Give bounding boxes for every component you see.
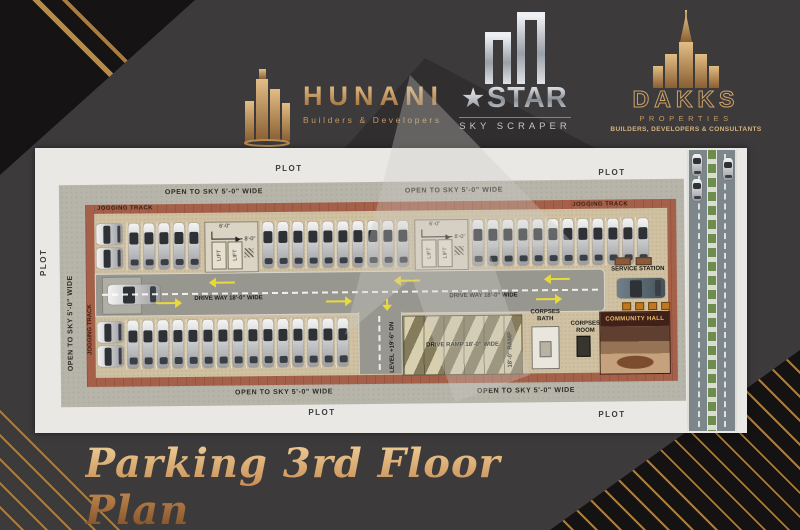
poster: HUNANI Builders & Developers ★ STAR SKY …	[0, 0, 800, 530]
road-car	[723, 158, 733, 180]
jogging-track-label-top-right: JOGGING TRACK	[572, 201, 628, 208]
parked-car	[157, 320, 169, 368]
parked-car	[487, 220, 498, 266]
driveway-label-1: DRIVE WAY 18'-0" WIDE	[181, 295, 276, 302]
parked-car	[128, 223, 139, 269]
open-to-sky-left: OPEN TO SKY 5'-0" WIDE	[66, 221, 75, 371]
ramp-width-label: 18'-0" RAMP	[507, 320, 514, 368]
parked-car	[127, 320, 139, 368]
plot-label-left: PLOT	[39, 234, 48, 290]
direction-arrow-left	[546, 278, 570, 280]
open-to-sky-bottom-left: OPEN TO SKY 5'-0" WIDE	[204, 388, 364, 397]
hunani-name: HUNANI	[303, 83, 444, 110]
parked-car	[202, 320, 214, 368]
service-station-bays	[622, 302, 670, 311]
lift-4: LIFT	[437, 239, 452, 267]
dakks-tagline: BUILDERS, DEVELOPERS & CONSULTANTS	[610, 126, 761, 133]
jogging-track-label-top-left: JOGGING TRACK	[97, 205, 153, 212]
dimension-arrow	[421, 229, 452, 237]
parked-car	[217, 320, 229, 368]
parked-car	[337, 221, 348, 267]
corpses-bath-label: CORPSES BATH	[525, 309, 565, 323]
parked-car	[97, 322, 123, 343]
driveway-label-2: DRIVE WAY 18'-0" WIDE	[436, 292, 531, 299]
hunani-logo: HUNANI Builders & Developers	[243, 58, 453, 150]
hunani-buildings-icon	[243, 61, 297, 147]
plot-label-top-right: PLOT	[582, 168, 642, 177]
jogging-track-label-left: JOGGING TRACK	[87, 265, 94, 355]
parked-car	[532, 219, 543, 265]
parked-car	[96, 224, 122, 245]
direction-arrow-left	[396, 280, 420, 282]
parking-column-top-left	[96, 224, 122, 269]
star-name: STAR	[487, 84, 568, 113]
parked-car	[292, 319, 304, 367]
plot-label-top-left: PLOT	[259, 164, 319, 173]
community-hall-label: COMMUNITY HALL	[600, 312, 669, 327]
ramp-label: DRIVE RAMP 18'-0" WIDE	[403, 315, 522, 374]
dimension-label: 8'-0"	[244, 236, 255, 242]
lift-label: LIFT	[216, 250, 222, 261]
star-icon: ★	[462, 87, 485, 111]
parked-car	[262, 222, 273, 268]
corpses-room-door	[576, 336, 590, 357]
community-hall: COMMUNITY HALL	[599, 311, 671, 375]
lane-divider	[378, 316, 381, 370]
parked-car	[577, 219, 588, 265]
parking-row-top-1	[126, 222, 201, 271]
direction-arrow-right	[326, 300, 350, 302]
parked-car	[277, 319, 289, 367]
parking-floor-plan: OPEN TO SKY 5'-0" WIDE OPEN TO SKY 5'-0"…	[59, 179, 686, 408]
parking-row-top-2	[260, 220, 410, 270]
road-car	[692, 154, 702, 176]
parked-car	[98, 346, 124, 367]
parked-car	[352, 221, 363, 267]
parked-car	[142, 320, 154, 368]
lift-label: LIFT	[232, 250, 238, 261]
lift-2: LIFT	[227, 241, 242, 269]
open-to-sky-top-left: OPEN TO SKY 5'-0" WIDE	[134, 188, 294, 197]
lift-label: LIFT	[426, 248, 432, 259]
star-buildings-icon	[473, 10, 557, 84]
parked-car	[307, 319, 319, 367]
lift-3: LIFT	[421, 239, 436, 267]
stair-hatch	[455, 246, 464, 255]
parked-car	[187, 320, 199, 368]
parked-car	[173, 223, 184, 269]
dimension-label: 8'-0"	[454, 234, 465, 240]
main-road	[687, 150, 737, 431]
parked-car	[277, 222, 288, 268]
parked-car	[322, 318, 334, 366]
parked-car	[97, 248, 123, 269]
dakks-logo: DAKKS PROPERTIES BUILDERS, DEVELOPERS & …	[612, 10, 760, 142]
direction-arrow-right	[536, 298, 560, 300]
corpses-bath-room	[531, 326, 559, 369]
parked-car	[172, 320, 184, 368]
plot-label-bottom-left: PLOT	[292, 408, 352, 417]
parked-car	[367, 221, 378, 267]
parking-column-bottom-left	[97, 322, 123, 367]
parked-car	[472, 220, 483, 266]
lane-marking	[724, 154, 726, 427]
parked-car	[397, 221, 408, 267]
dimension-label: 6'-0"	[219, 223, 230, 229]
jogging-track-ring: JOGGING TRACK JOGGING TRACK JOGGING TRAC…	[85, 199, 678, 387]
ramp-access-lane	[358, 312, 403, 374]
parked-car	[232, 319, 244, 367]
service-station-kiosks	[615, 257, 652, 265]
road-median	[708, 150, 716, 431]
ramp-level-label: LEVEL +19'-6" DN	[389, 319, 396, 373]
drive-ramp: DRIVE RAMP 18'-0" WIDE	[402, 314, 523, 375]
parked-car	[547, 219, 558, 265]
dimension-arrow	[211, 231, 242, 239]
direction-arrow-right	[156, 302, 180, 304]
open-to-sky-bottom-right: OPEN TO SKY 5'-0" WIDE	[446, 387, 606, 396]
parked-car	[158, 223, 169, 269]
parked-car	[337, 318, 349, 366]
road-car	[692, 179, 702, 201]
parked-car	[382, 221, 393, 267]
parking-row-bottom	[125, 317, 351, 369]
hunani-tagline: Builders & Developers	[303, 115, 444, 125]
star-tagline: SKY SCRAPER	[459, 117, 570, 132]
lift-label: LIFT	[442, 248, 448, 259]
lift-core-2: 6'-0" LIFT LIFT 8'-0"	[414, 219, 469, 271]
dimension-label: 6'-0"	[429, 221, 440, 227]
parked-car	[322, 221, 333, 267]
open-to-sky-top-right: OPEN TO SKY 5'-0" WIDE	[374, 186, 534, 195]
direction-arrow-left	[211, 281, 235, 283]
plan-canvas: PLOT PLOT PLOT PLOT PLOT OPEN TO SKY 5'-…	[35, 148, 747, 433]
parked-car	[562, 219, 573, 265]
dakks-tower-icon	[640, 10, 732, 88]
direction-arrow-down	[386, 299, 388, 310]
lift-core-1: 6'-0" LIFT LIFT 8'-0"	[204, 221, 259, 273]
parked-car	[517, 219, 528, 265]
parked-car	[143, 223, 154, 269]
parked-car	[502, 220, 513, 266]
lift-1: LIFT	[211, 242, 226, 270]
road-cars	[692, 154, 702, 201]
parked-car	[188, 223, 199, 269]
parked-car	[292, 222, 303, 268]
page-title: Parking 3rd Floor Plan	[85, 440, 545, 530]
parked-car	[592, 219, 603, 265]
parked-car	[307, 222, 318, 268]
star-logo: ★ STAR SKY SCRAPER	[452, 10, 578, 148]
dakks-sub: PROPERTIES	[639, 114, 732, 123]
community-hall-interior	[600, 326, 669, 374]
parking-floor: 6'-0" LIFT LIFT 8'-0" 6'-0" LIFT	[94, 208, 669, 378]
plot-label-bottom-right: PLOT	[582, 410, 642, 419]
stair-hatch	[245, 248, 254, 257]
parked-car	[262, 319, 274, 367]
parked-car	[247, 319, 259, 367]
service-station-car	[617, 278, 665, 299]
service-station-label: SERVICE STATION	[608, 266, 668, 273]
dakks-name: DAKKS	[633, 88, 740, 111]
